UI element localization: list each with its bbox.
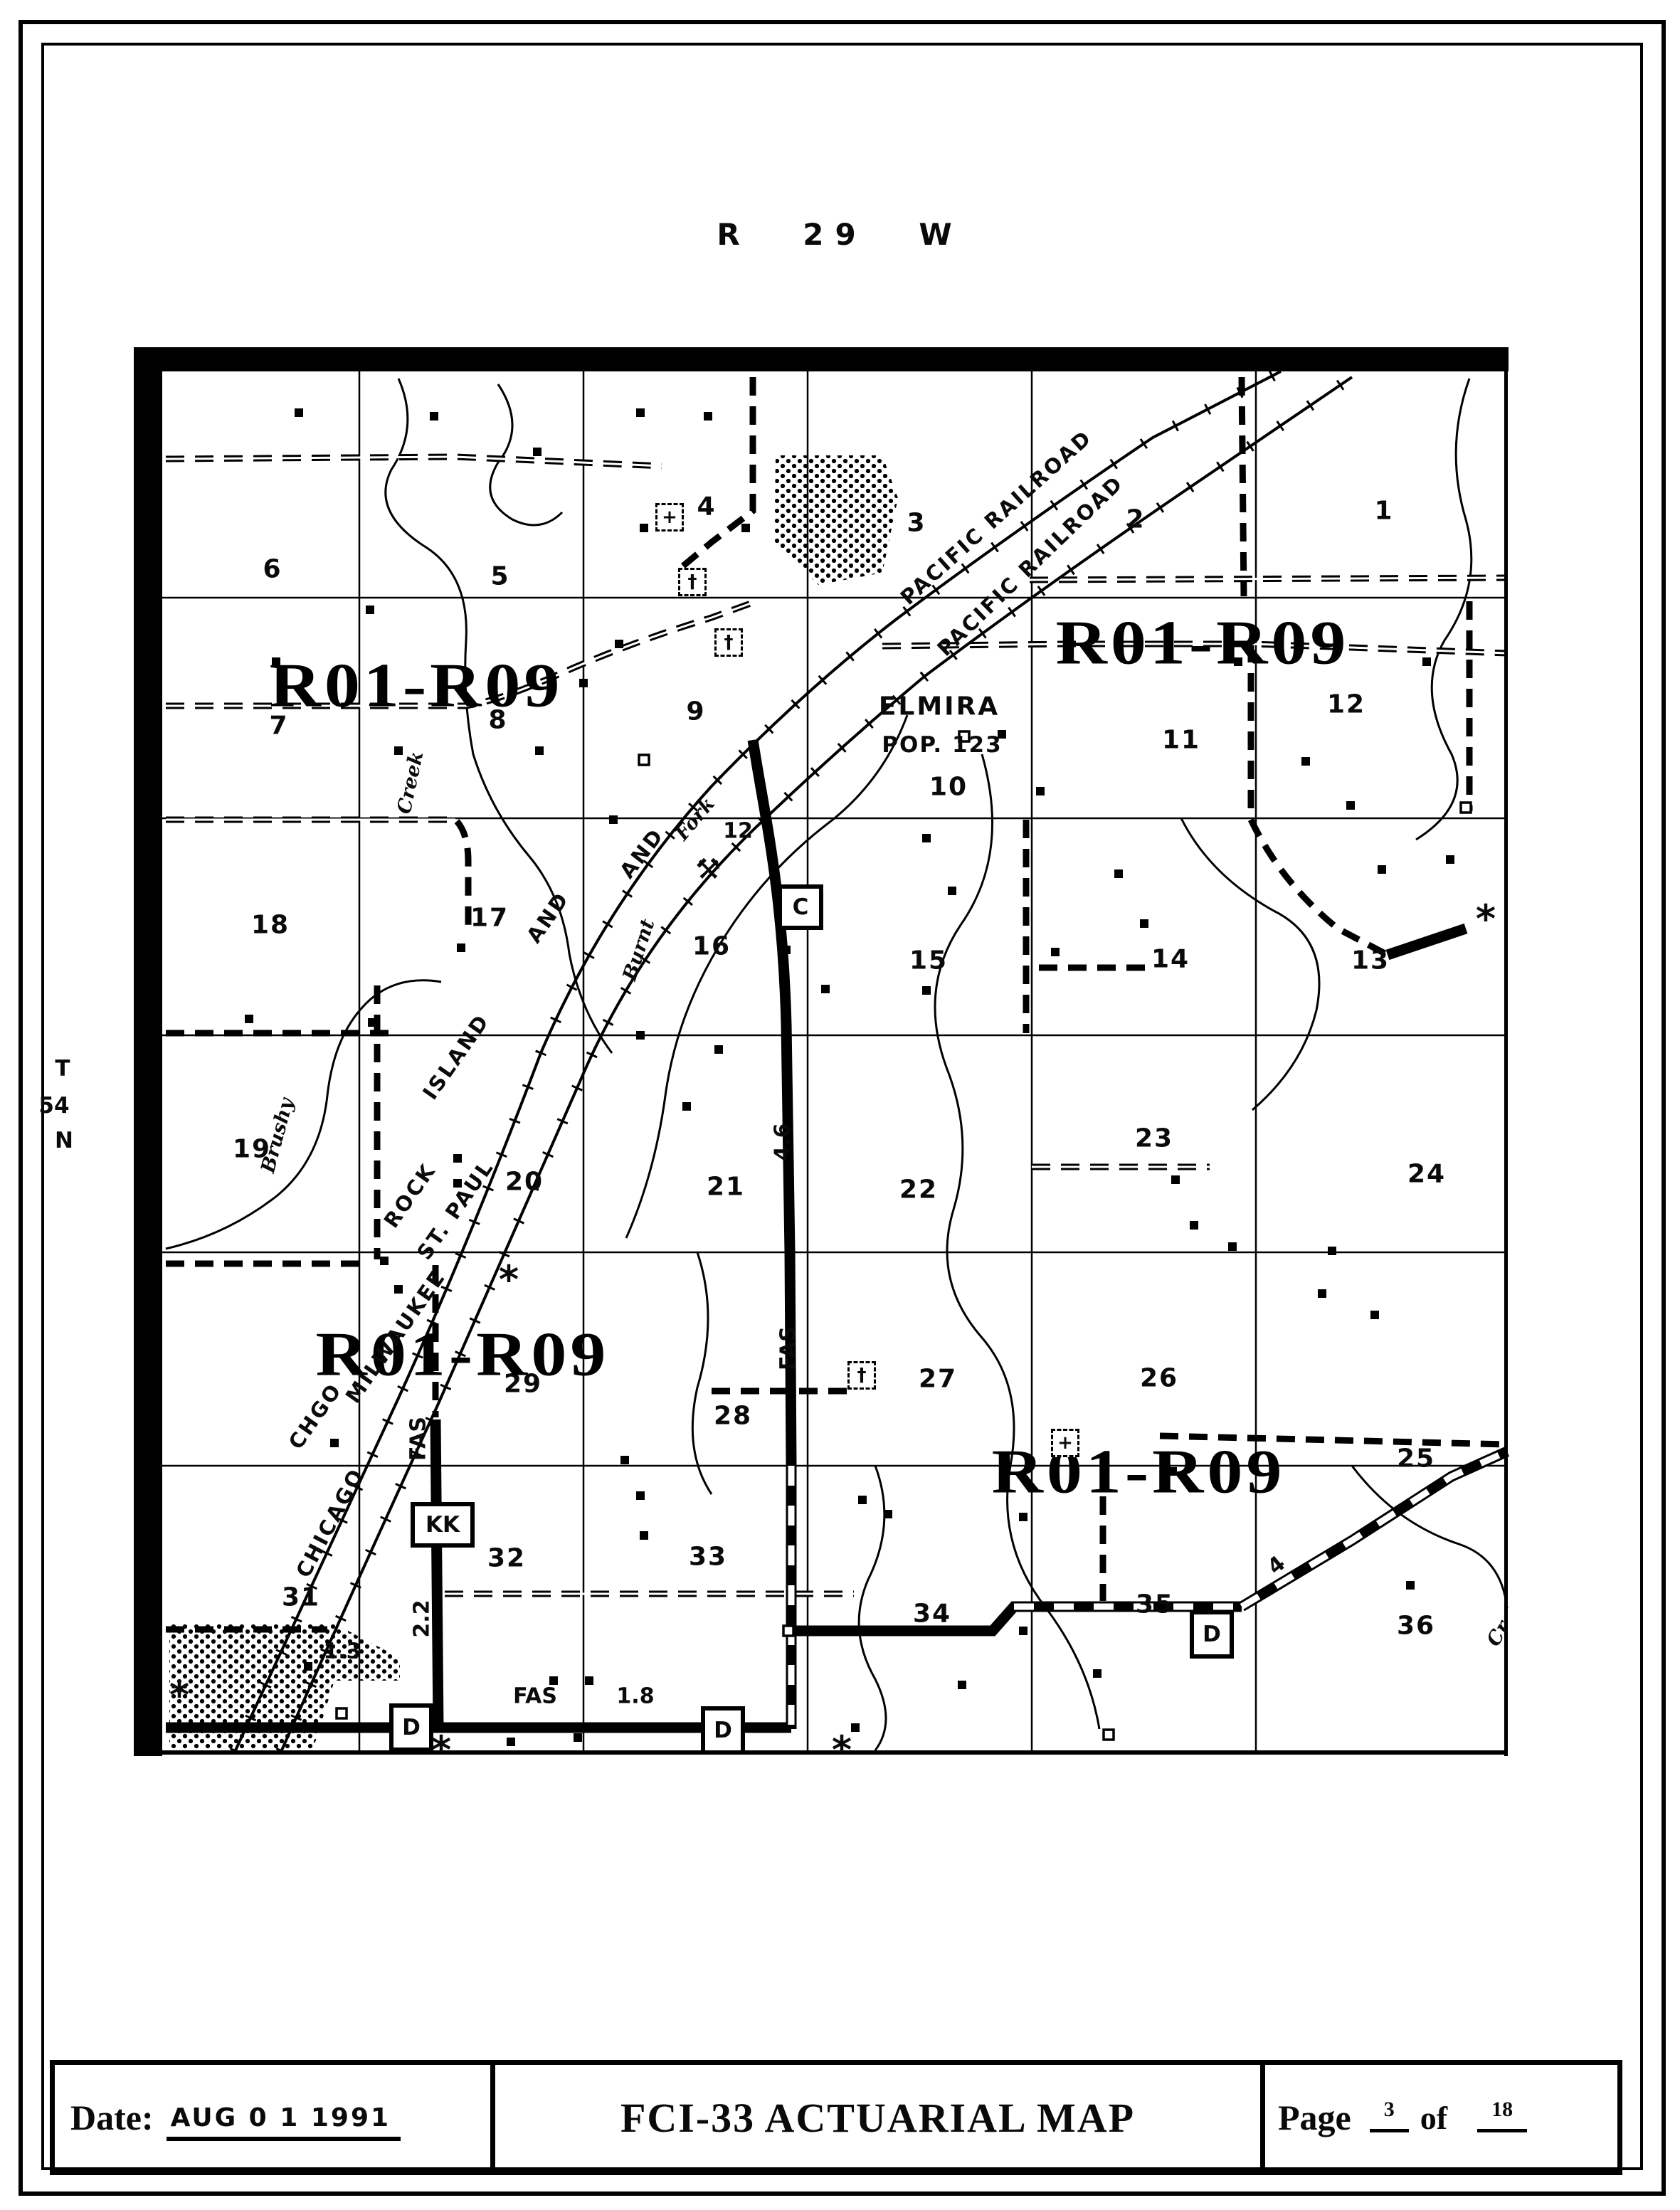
section-number-24: 24 bbox=[1407, 1160, 1446, 1189]
section-number-12: 12 bbox=[1327, 690, 1365, 719]
date-label: Date: bbox=[70, 2097, 154, 2138]
page-total: 18 bbox=[1477, 2098, 1527, 2132]
section-number-18: 18 bbox=[251, 911, 290, 940]
star-icon: * bbox=[169, 1676, 189, 1715]
church-icon: + bbox=[1051, 1429, 1079, 1457]
star-icon: * bbox=[499, 1261, 519, 1299]
stream-label: Burnt bbox=[619, 916, 660, 983]
railroad-label: AND bbox=[522, 887, 574, 948]
footer-page-cell: Page 3 of 18 bbox=[1265, 2065, 1617, 2170]
section-number-9: 9 bbox=[686, 697, 705, 726]
section-number-28: 28 bbox=[714, 1402, 752, 1431]
section-number-31: 31 bbox=[282, 1583, 320, 1612]
road-mileage-label: 4.6 bbox=[771, 1123, 796, 1160]
section-number-6: 6 bbox=[263, 555, 282, 584]
road-mileage-label: FAS bbox=[513, 1684, 557, 1709]
page-number: 3 bbox=[1370, 2098, 1409, 2132]
section-number-25: 25 bbox=[1397, 1444, 1435, 1474]
mine-icon: ⚒ bbox=[695, 855, 721, 884]
section-number-27: 27 bbox=[919, 1365, 957, 1394]
road-mileage-label: FAS bbox=[406, 1417, 431, 1461]
cemetery-icon: † bbox=[678, 568, 707, 596]
map-labels-layer: 6543217891011121817161514131920212223242… bbox=[0, 0, 1680, 2210]
road-mileage-label: 4 bbox=[1263, 1551, 1290, 1580]
section-number-2: 2 bbox=[1126, 505, 1145, 534]
route-marker-C: C bbox=[778, 884, 823, 930]
section-number-5: 5 bbox=[490, 562, 509, 591]
section-number-26: 26 bbox=[1140, 1364, 1178, 1393]
section-number-14: 14 bbox=[1151, 945, 1190, 974]
scanned-actuarial-map-page: { "page": { "range_label": "R 29 W", "to… bbox=[0, 0, 1680, 2210]
section-number-3: 3 bbox=[907, 509, 926, 538]
railroad-label: AND bbox=[615, 823, 669, 883]
date-stamp-value: AUG 0 1 1991 bbox=[167, 2103, 401, 2141]
risk-area-stamp-2: R01-R09 bbox=[1056, 606, 1350, 678]
church-icon: + bbox=[655, 503, 684, 532]
section-number-17: 17 bbox=[470, 904, 509, 933]
section-number-11: 11 bbox=[1162, 726, 1200, 755]
section-number-21: 21 bbox=[707, 1173, 745, 1202]
section-number-4: 4 bbox=[697, 492, 716, 522]
route-marker-D: D bbox=[389, 1703, 433, 1752]
of-label: of bbox=[1420, 2099, 1447, 2137]
town-name-elmira: ELMIRA bbox=[879, 692, 1000, 721]
section-number-32: 32 bbox=[487, 1544, 526, 1573]
section-number-35: 35 bbox=[1136, 1590, 1174, 1619]
section-number-1: 1 bbox=[1374, 497, 1393, 526]
stream-label: Cr bbox=[1483, 1617, 1515, 1650]
section-number-13: 13 bbox=[1351, 946, 1390, 976]
footer-date-cell: Date: AUG 0 1 1991 bbox=[55, 2065, 495, 2170]
road-mileage-label: 1.3 bbox=[323, 1639, 361, 1664]
section-number-33: 33 bbox=[689, 1543, 727, 1572]
footer-table: Date: AUG 0 1 1991 FCI-33 ACTUARIAL MAP … bbox=[50, 2060, 1622, 2175]
road-mileage-label: FAS bbox=[776, 1326, 801, 1370]
road-mileage-label: 12 bbox=[723, 819, 753, 844]
risk-area-stamp-4: R01-R09 bbox=[992, 1435, 1286, 1507]
cemetery-icon: † bbox=[714, 628, 743, 657]
footer-title-cell: FCI-33 ACTUARIAL MAP bbox=[495, 2065, 1265, 2170]
section-number-23: 23 bbox=[1135, 1124, 1173, 1153]
page-label: Page bbox=[1278, 2097, 1351, 2138]
stream-label: Creek bbox=[393, 749, 428, 815]
town-population: POP. 123 bbox=[882, 732, 1002, 758]
cemetery-icon: † bbox=[847, 1361, 876, 1390]
route-marker-D: D bbox=[1190, 1610, 1234, 1659]
section-number-22: 22 bbox=[899, 1175, 938, 1205]
section-number-34: 34 bbox=[913, 1600, 951, 1629]
route-marker-KK: KK bbox=[411, 1502, 475, 1548]
map-title: FCI-33 ACTUARIAL MAP bbox=[620, 2094, 1135, 2142]
section-number-16: 16 bbox=[692, 932, 731, 961]
road-mileage-label: 2.2 bbox=[410, 1600, 435, 1637]
star-icon: * bbox=[832, 1731, 852, 1770]
section-number-10: 10 bbox=[929, 773, 968, 802]
star-icon: * bbox=[1476, 900, 1496, 939]
route-marker-D: D bbox=[701, 1706, 745, 1755]
railroad-label: CHICAGO bbox=[291, 1464, 369, 1582]
section-number-20: 20 bbox=[505, 1168, 544, 1197]
star-icon: * bbox=[431, 1731, 451, 1770]
risk-area-stamp-1: R01-R09 bbox=[270, 649, 564, 721]
stream-label: Fork bbox=[671, 793, 719, 845]
road-mileage-label: 1.8 bbox=[616, 1684, 654, 1709]
section-number-36: 36 bbox=[1397, 1612, 1435, 1641]
railroad-label: ISLAND bbox=[418, 1009, 495, 1104]
section-number-15: 15 bbox=[909, 946, 948, 976]
